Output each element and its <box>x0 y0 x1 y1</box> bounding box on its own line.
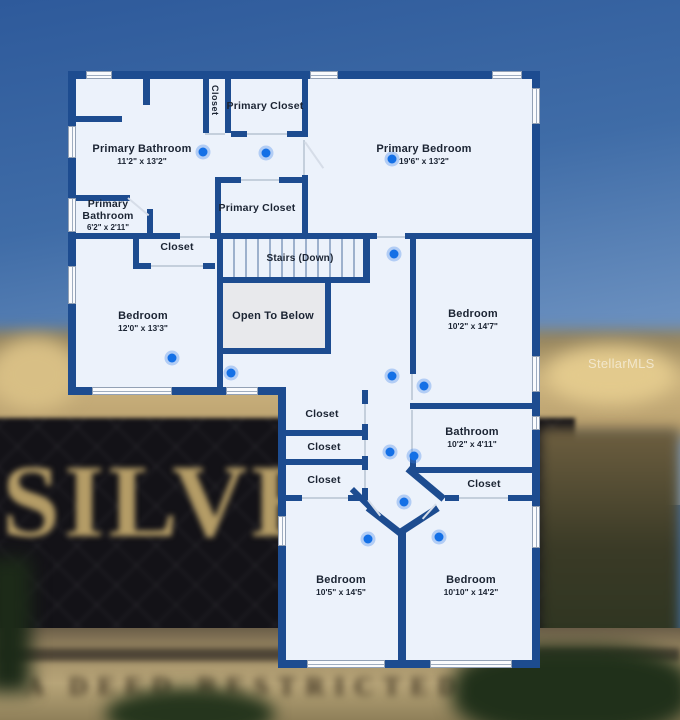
wall <box>286 495 302 501</box>
door-opening <box>151 265 203 267</box>
room-label-primary-bedroom: Primary Bedroom 19'6" x 13'2" <box>376 143 471 166</box>
door-opening <box>364 440 366 456</box>
room-name: Primary Bathroom <box>72 198 144 222</box>
wall <box>231 131 247 137</box>
room-name: Closet <box>467 478 500 490</box>
room-name: Closet <box>307 441 340 453</box>
wall <box>76 233 180 239</box>
camera-dot <box>168 354 177 363</box>
window <box>307 660 385 668</box>
wall <box>143 79 150 105</box>
window <box>86 71 112 79</box>
room-label-primary-closet-top: Primary Closet <box>227 100 304 112</box>
room-name: Bedroom <box>444 574 499 587</box>
door-opening <box>364 470 366 488</box>
door-opening <box>364 404 366 424</box>
camera-dot <box>410 452 419 461</box>
room-name: Bathroom <box>445 426 499 439</box>
door-opening <box>241 179 279 181</box>
wall <box>68 71 76 395</box>
door-opening <box>411 410 413 455</box>
door-opening <box>459 497 508 499</box>
room-dims: 11'2" x 13'2" <box>92 157 191 167</box>
room-dims: 12'0" x 13'3" <box>118 324 168 334</box>
wall <box>508 495 532 501</box>
window <box>278 516 286 546</box>
door-opening <box>411 374 413 400</box>
wall <box>217 277 370 283</box>
camera-dot <box>435 533 444 542</box>
room-label-closet-hall: Closet <box>210 85 220 133</box>
window <box>92 387 172 395</box>
wall <box>398 529 406 668</box>
room-name: Bedroom <box>448 308 498 321</box>
window <box>68 266 76 304</box>
wall <box>325 283 331 354</box>
wall <box>68 71 540 79</box>
room-label-bedroom-bottom-left: Bedroom 10'5" x 14'5" <box>316 574 366 597</box>
room-name: Closet <box>160 241 193 253</box>
wall <box>133 239 139 263</box>
room-dims: 10'2" x 14'7" <box>448 322 498 332</box>
room-label-closet-3: Closet <box>307 474 340 486</box>
room-label-bathroom: Bathroom 10'2" x 4'11" <box>445 426 499 449</box>
window <box>430 660 512 668</box>
wall <box>363 239 370 283</box>
room-label-closet-br: Closet <box>467 478 500 490</box>
wall <box>302 175 308 239</box>
wall <box>279 177 308 183</box>
room-label-open-to-below: Open To Below <box>232 310 314 323</box>
window <box>532 356 540 392</box>
room-label-closet-1: Closet <box>305 408 338 420</box>
room-label-closet-2: Closet <box>307 441 340 453</box>
wall <box>286 459 368 465</box>
door-opening <box>303 140 305 175</box>
camera-dot <box>400 498 409 507</box>
room-dims: 6'2" x 2'11" <box>72 223 144 232</box>
window <box>68 126 76 158</box>
room-dims: 10'10" x 14'2" <box>444 588 499 598</box>
room-name: Primary Closet <box>227 100 304 112</box>
wall <box>410 403 538 409</box>
room-label-closet-a: Closet <box>160 241 193 253</box>
wall <box>210 233 377 239</box>
room-label-bedroom-left: Bedroom 12'0" x 13'3" <box>118 310 168 333</box>
wall <box>445 495 459 501</box>
window <box>310 71 338 79</box>
room-dims: 10'5" x 14'5" <box>316 588 366 598</box>
wall <box>410 467 538 473</box>
door-opening <box>205 133 225 135</box>
stellar-mls-watermark: StellarMLS <box>588 356 655 371</box>
listing-photo: SILVER A DEED RESTRICTED CO <box>0 0 680 720</box>
monument-highlight <box>546 346 676 404</box>
camera-dot <box>262 149 271 158</box>
room-name: Primary Closet <box>219 202 296 214</box>
window <box>226 387 258 395</box>
room-name: Primary Bathroom <box>92 143 191 156</box>
camera-dot <box>386 448 395 457</box>
door-opening <box>302 497 348 499</box>
room-label-bedroom-bottom-right: Bedroom 10'10" x 14'2" <box>444 574 499 597</box>
door-opening <box>180 236 210 238</box>
room-name: Closet <box>307 474 340 486</box>
wall <box>133 263 151 269</box>
room-name: Closet <box>305 408 338 420</box>
window <box>532 416 540 430</box>
room-name: Stairs (Down) <box>266 253 333 265</box>
camera-dot <box>364 535 373 544</box>
room-dims: 19'6" x 13'2" <box>376 157 471 167</box>
room-label-primary-bathroom-2: Primary Bathroom 6'2" x 2'11" <box>72 198 144 232</box>
window <box>532 506 540 548</box>
room-name: Open To Below <box>232 310 314 323</box>
wall <box>217 239 223 390</box>
camera-dot <box>388 372 397 381</box>
room-name: Bedroom <box>316 574 366 587</box>
wall <box>76 116 122 122</box>
wall <box>405 233 532 239</box>
wall <box>410 239 416 374</box>
camera-dot <box>227 369 236 378</box>
window <box>492 71 522 79</box>
room-label-bedroom-right: Bedroom 10'2" x 14'7" <box>448 308 498 331</box>
camera-dot <box>420 382 429 391</box>
camera-dot <box>199 148 208 157</box>
room-label-stairs: Stairs (Down) <box>266 253 333 265</box>
window <box>532 88 540 124</box>
wall <box>203 79 209 133</box>
room-label-primary-bathroom: Primary Bathroom 11'2" x 13'2" <box>92 143 191 166</box>
door-opening <box>377 236 405 238</box>
camera-dot <box>390 250 399 259</box>
wall <box>203 263 215 269</box>
foliage <box>0 558 31 693</box>
wall <box>217 348 331 354</box>
room-label-primary-closet-2: Primary Closet <box>219 202 296 214</box>
room-name: Bedroom <box>118 310 168 323</box>
room-dims: 10'2" x 4'11" <box>445 440 499 450</box>
wall <box>286 430 368 436</box>
door-opening <box>247 133 287 135</box>
room-name: Primary Bedroom <box>376 143 471 156</box>
